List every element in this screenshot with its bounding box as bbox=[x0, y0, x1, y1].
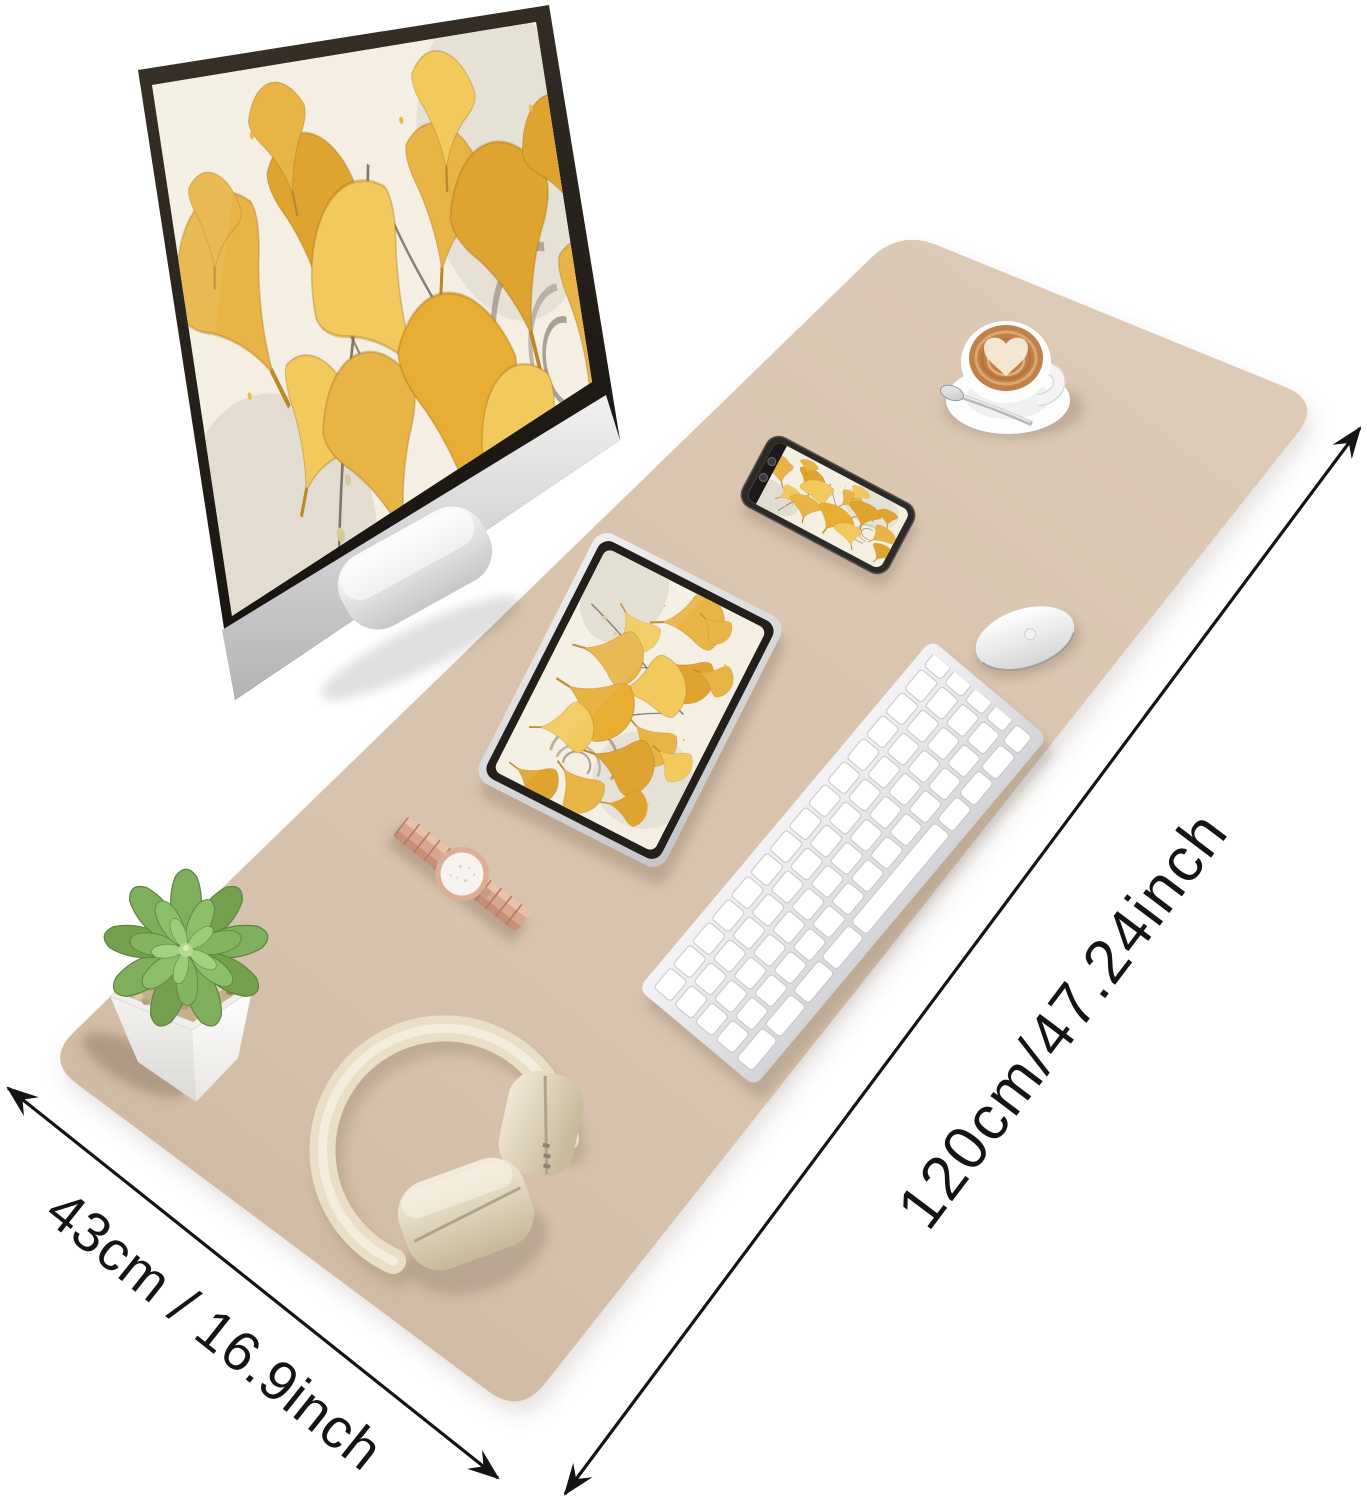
scene-canvas bbox=[0, 0, 1367, 1500]
product-photo: 120cm/47.24inch 43cm / 16.9inch bbox=[0, 0, 1367, 1500]
